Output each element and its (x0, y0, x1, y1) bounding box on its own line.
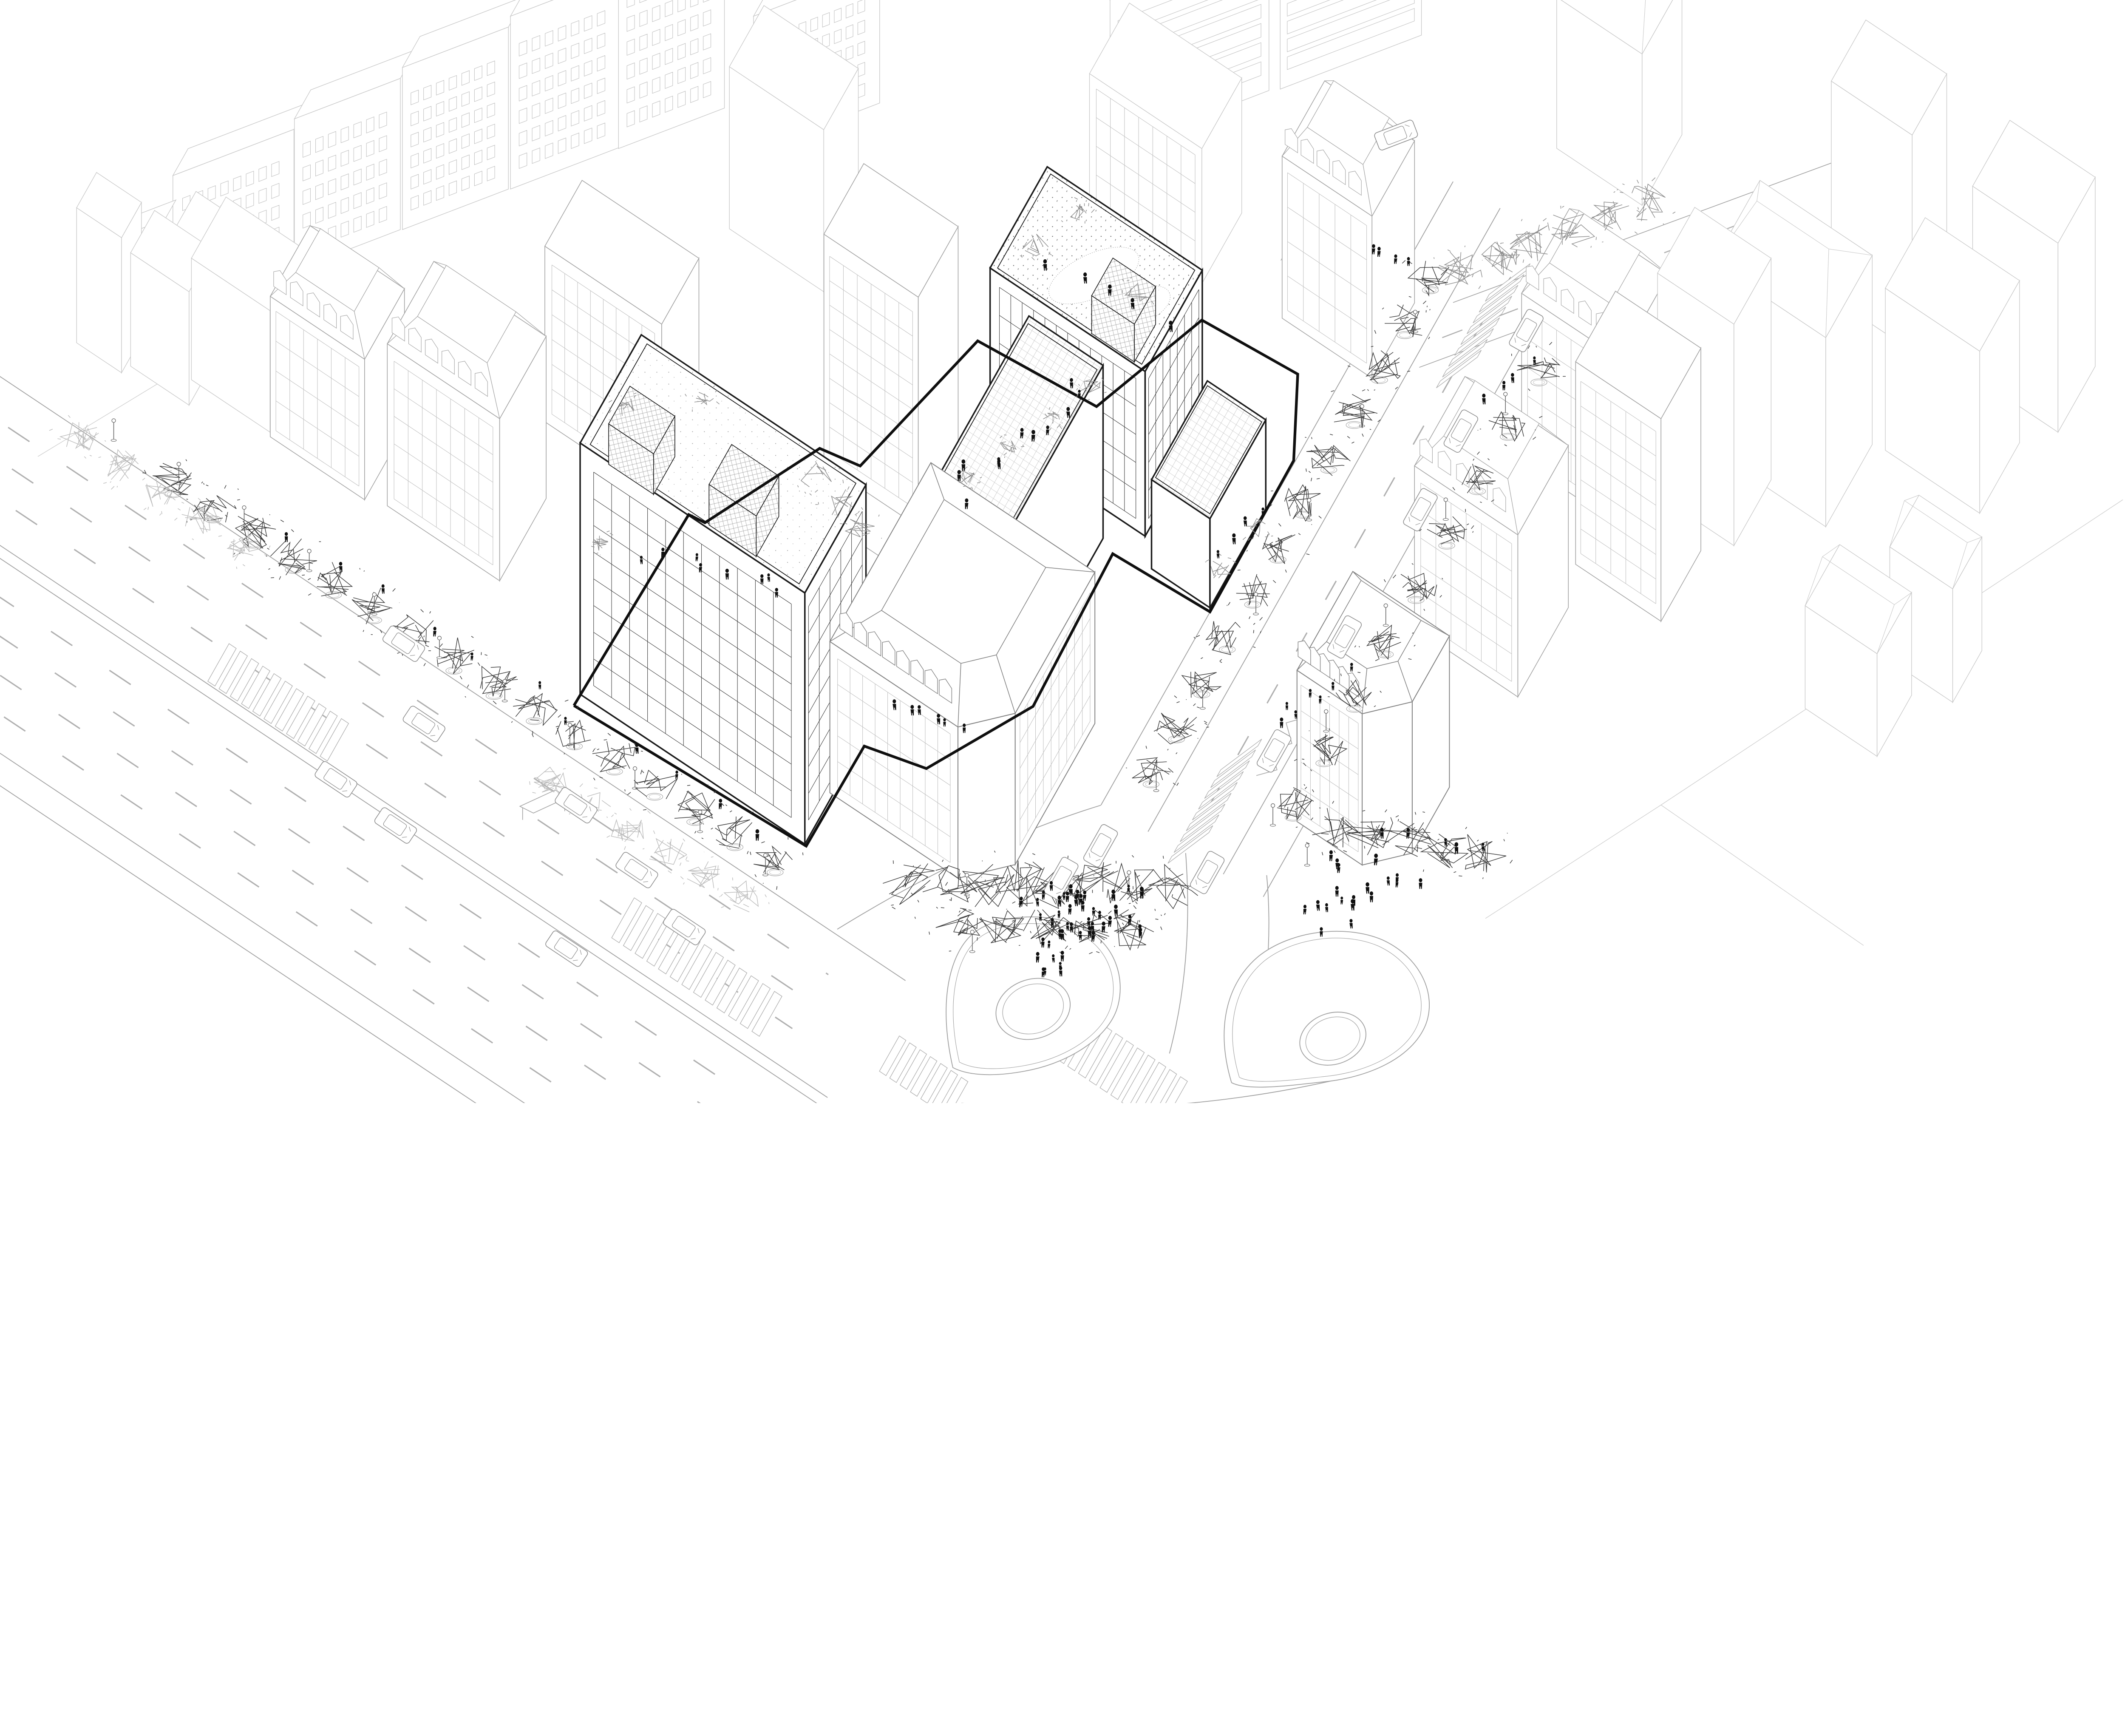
architectural-axonometric-view (0, 0, 2125, 1103)
axonometric-drawing (0, 0, 2125, 1103)
